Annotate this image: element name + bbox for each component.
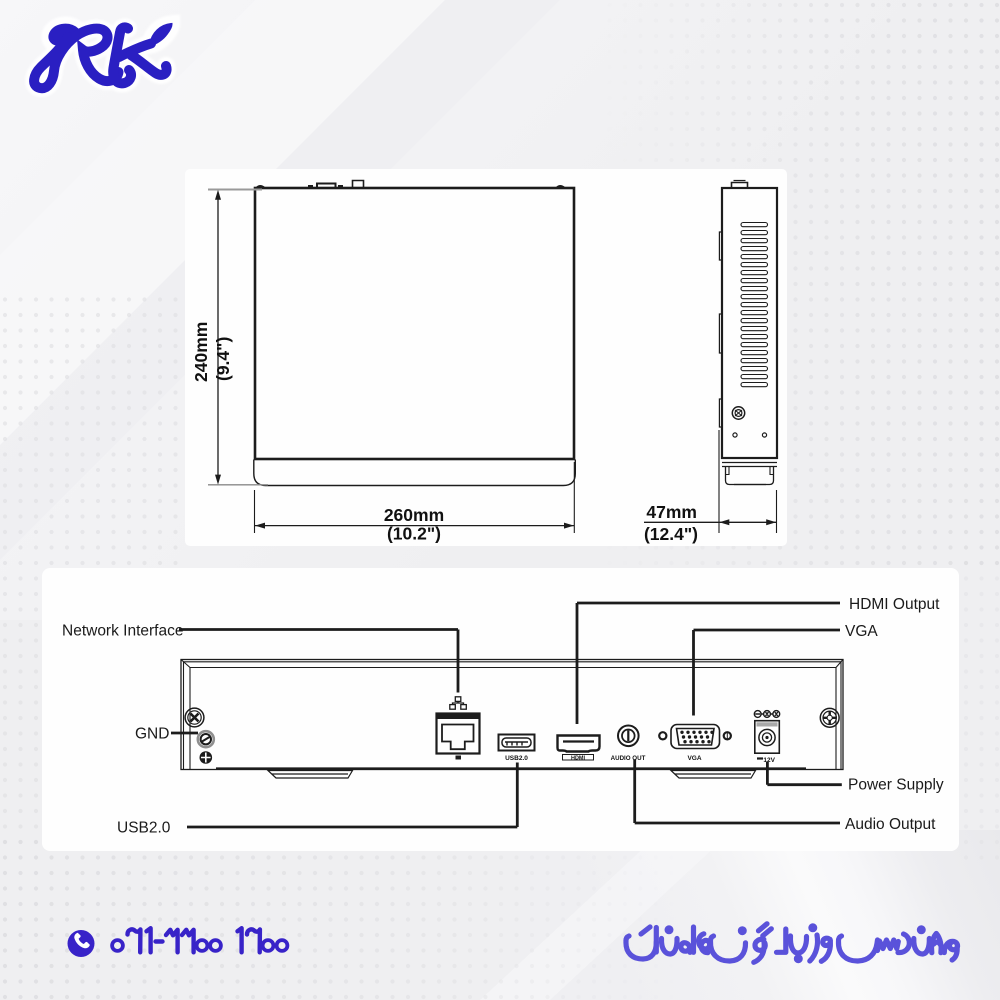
svg-text:USB2.0: USB2.0 bbox=[505, 755, 528, 762]
svg-text:HDMI Output: HDMI Output bbox=[849, 596, 940, 613]
svg-text:VGA: VGA bbox=[687, 755, 701, 762]
svg-text:Audio Output: Audio Output bbox=[845, 816, 936, 833]
svg-text:USB2.0: USB2.0 bbox=[117, 820, 171, 837]
svg-text:(12.4"): (12.4") bbox=[644, 524, 698, 544]
svg-text:(10.2"): (10.2") bbox=[387, 524, 441, 544]
svg-text:HDMI: HDMI bbox=[571, 755, 586, 761]
svg-text:VGA: VGA bbox=[845, 623, 878, 640]
svg-text:260mm: 260mm bbox=[384, 505, 444, 525]
svg-text:GND: GND bbox=[135, 726, 169, 743]
svg-text:12V: 12V bbox=[763, 757, 775, 764]
svg-text:AUDIO OUT: AUDIO OUT bbox=[611, 755, 646, 762]
svg-text:240mm: 240mm bbox=[191, 322, 211, 382]
svg-text:Power Supply: Power Supply bbox=[848, 777, 944, 794]
svg-text:(9.4"): (9.4") bbox=[213, 337, 233, 381]
svg-text:47mm: 47mm bbox=[646, 502, 697, 522]
svg-text:Network Interface: Network Interface bbox=[62, 623, 183, 640]
